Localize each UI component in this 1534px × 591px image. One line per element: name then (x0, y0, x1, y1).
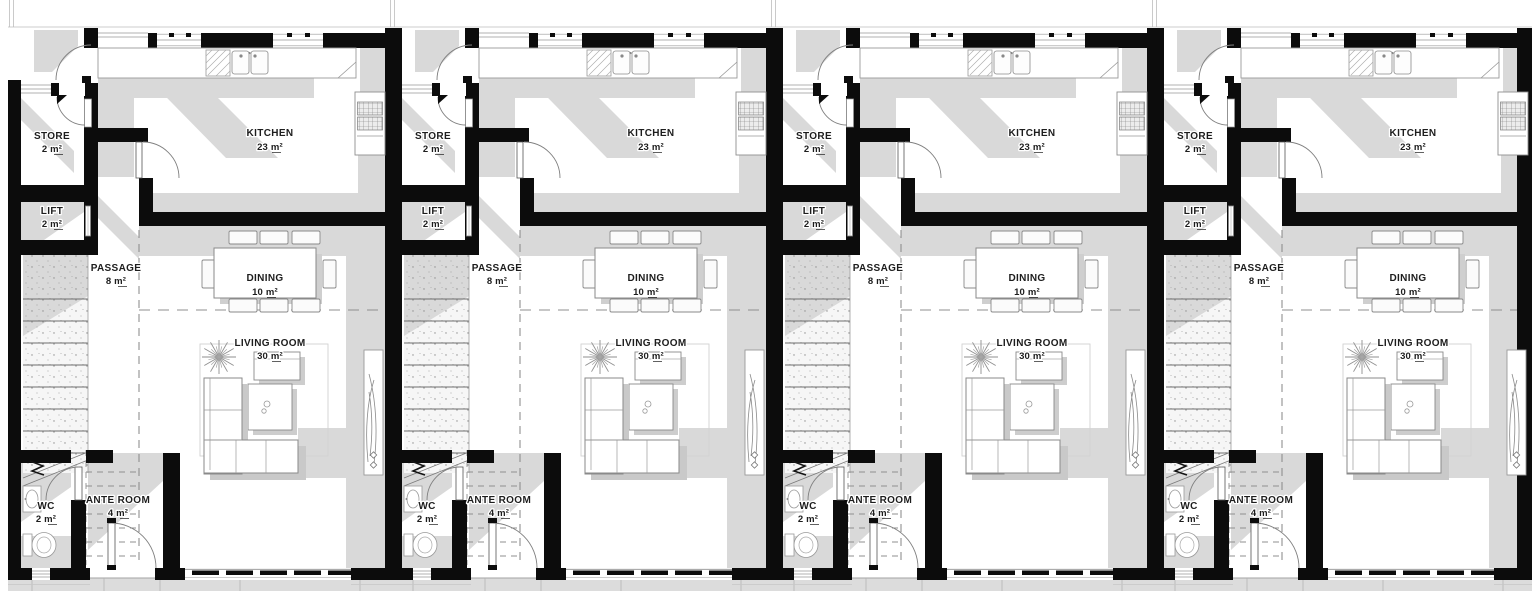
floor-plan-unit-3: STORE 2 m² LIFT 2 m² KITCHEN 23 m² PASSA… (770, 0, 1151, 591)
store-window (402, 83, 432, 95)
wc-window (413, 568, 431, 580)
main-entry-door-arc (111, 523, 156, 568)
passage-area: 8 m² (106, 276, 126, 287)
floor-plan: STORE 2 m² LIFT 2 m² KITCHEN 23 m² PASSA… (0, 0, 1534, 591)
wc-area: 2 m² (36, 514, 56, 525)
kitchen-sink (968, 50, 1030, 76)
entry-door-niche (98, 31, 148, 42)
living-room-area: 30 m² (638, 351, 664, 362)
dining-label: DINING (627, 273, 664, 284)
kitchen-sink (587, 50, 649, 76)
store-area: 2 m² (804, 144, 824, 155)
ante-room-area: 4 m² (1251, 508, 1271, 519)
ante-room-label: ANTE ROOM (848, 495, 912, 506)
sideboard (745, 350, 764, 475)
wc-label: WC (418, 501, 435, 512)
ante-room-label: ANTE ROOM (86, 495, 150, 506)
lift-label: LIFT (422, 206, 445, 217)
ante-room-label: ANTE ROOM (467, 495, 531, 506)
wc-area: 2 m² (417, 514, 437, 525)
kitchen-door-leaf (517, 142, 523, 178)
wc-area: 2 m² (1179, 514, 1199, 525)
dining-area: 10 m² (633, 287, 659, 298)
passage-label: PASSAGE (1234, 263, 1285, 274)
kitchen-door-leaf (136, 142, 142, 178)
kitchen-label: KITCHEN (1009, 128, 1056, 139)
store-door-hinge-icon (1200, 95, 1210, 104)
toilet (1166, 533, 1199, 558)
living-room-window (566, 568, 732, 580)
passage-area: 8 m² (487, 276, 507, 287)
store-label: STORE (796, 131, 832, 142)
wc-window (32, 568, 50, 580)
plant (583, 340, 617, 374)
store-door-hinge-icon (819, 95, 829, 104)
kitchen-window-left (154, 33, 204, 48)
kitchen-area: 23 m² (1400, 142, 1426, 153)
living-room-label: LIVING ROOM (615, 338, 686, 349)
kitchen-label: KITCHEN (628, 128, 675, 139)
floor-plan-unit-1: STORE 2 m² LIFT 2 m² KITCHEN 23 m² PASSA… (8, 0, 389, 591)
kitchen-area: 23 m² (1019, 142, 1045, 153)
kitchen-window-left (1297, 33, 1347, 48)
main-entry-door-leaf (489, 523, 496, 568)
lift-area: 2 m² (42, 219, 62, 230)
kitchen-window-right (651, 33, 707, 48)
wc-window (1175, 568, 1193, 580)
site-boundary-lines (8, 0, 389, 27)
passage-area: 8 m² (868, 276, 888, 287)
kitchen-door-leaf (898, 142, 904, 178)
sideboard (1126, 350, 1145, 475)
site-boundary-lines (389, 0, 770, 27)
unit-drawing: STORE 2 m² LIFT 2 m² KITCHEN 23 m² PASSA… (389, 0, 770, 591)
lift-area: 2 m² (423, 219, 443, 230)
coffee-table (629, 384, 678, 435)
dining-label: DINING (246, 273, 283, 284)
main-entry-door-arc (1254, 523, 1299, 568)
living-room-window (947, 568, 1113, 580)
main-entry-door-leaf (870, 523, 877, 568)
site-boundary-lines (1151, 0, 1532, 27)
wc-door-leaf (75, 467, 82, 500)
kitchen-door-leaf (1279, 142, 1285, 178)
living-room-area: 30 m² (1019, 351, 1045, 362)
entry-door-niche (1241, 31, 1291, 42)
lift-label: LIFT (41, 206, 64, 217)
kitchen-window-right (1413, 33, 1469, 48)
kitchen-door-arc (143, 142, 179, 178)
lift-label: LIFT (1184, 206, 1207, 217)
lift-doors (1229, 206, 1234, 236)
lift-label: LIFT (803, 206, 826, 217)
lift-area: 2 m² (1185, 219, 1205, 230)
unit-drawing: STORE 2 m² LIFT 2 m² KITCHEN 23 m² PASSA… (8, 0, 389, 591)
store-door-arc (57, 97, 85, 125)
living-room-area: 30 m² (257, 351, 283, 362)
kitchen-window-right (1032, 33, 1088, 48)
store-label: STORE (415, 131, 451, 142)
ante-room-label: ANTE ROOM (1229, 495, 1293, 506)
passage-label: PASSAGE (91, 263, 142, 274)
toilet (23, 533, 56, 558)
lift-doors (467, 206, 472, 236)
wc-door-leaf (1218, 467, 1225, 500)
kitchen-sink (206, 50, 268, 76)
store-door-arc (1200, 97, 1228, 125)
plant (1345, 340, 1379, 374)
main-entry-door-leaf (1251, 523, 1258, 568)
dining-label: DINING (1008, 273, 1045, 284)
dining-area: 10 m² (1014, 287, 1040, 298)
stove (1117, 92, 1147, 155)
ante-room-area: 4 m² (489, 508, 509, 519)
kitchen-label: KITCHEN (247, 128, 294, 139)
store-area: 2 m² (1185, 144, 1205, 155)
store-door-arc (819, 97, 847, 125)
store-door-hinge-icon (57, 95, 67, 104)
store-door-arc (438, 97, 466, 125)
entry-door-niche (479, 31, 529, 42)
dining-label: DINING (1389, 273, 1426, 284)
kitchen-window-left (916, 33, 966, 48)
entry-door-niche (860, 31, 910, 42)
toilet (785, 533, 818, 558)
kitchen-door-arc (905, 142, 941, 178)
coffee-table (248, 384, 297, 435)
store-door-channel (85, 99, 92, 127)
passage-label: PASSAGE (472, 263, 523, 274)
store-window (21, 83, 51, 95)
kitchen-area: 23 m² (257, 142, 283, 153)
coffee-table (1391, 384, 1440, 435)
site-boundary-lines (770, 0, 1151, 27)
kitchen-sink (1349, 50, 1411, 76)
wc-door-leaf (456, 467, 463, 500)
main-entry-door-arc (873, 523, 918, 568)
store-area: 2 m² (423, 144, 443, 155)
wc-area: 2 m² (798, 514, 818, 525)
unit-drawing: STORE 2 m² LIFT 2 m² KITCHEN 23 m² PASSA… (770, 0, 1151, 591)
toilet (404, 533, 437, 558)
main-entry-door-leaf (108, 523, 115, 568)
kitchen-door-arc (1286, 142, 1322, 178)
plant (202, 340, 236, 374)
sideboard (1507, 350, 1526, 475)
store-window (1164, 83, 1194, 95)
plant (964, 340, 998, 374)
dining-area: 10 m² (1395, 287, 1421, 298)
main-entry-door-arc (492, 523, 537, 568)
lift-doors (86, 206, 91, 236)
unit-drawing: STORE 2 m² LIFT 2 m² KITCHEN 23 m² PASSA… (1151, 0, 1532, 591)
store-window (783, 83, 813, 95)
floor-plan-unit-2: STORE 2 m² LIFT 2 m² KITCHEN 23 m² PASSA… (389, 0, 770, 591)
store-door-channel (1228, 99, 1235, 127)
kitchen-label: KITCHEN (1390, 128, 1437, 139)
living-room-label: LIVING ROOM (1377, 338, 1448, 349)
store-door-channel (847, 99, 854, 127)
wc-label: WC (799, 501, 816, 512)
passage-label: PASSAGE (853, 263, 904, 274)
store-door-hinge-icon (438, 95, 448, 104)
kitchen-window-left (535, 33, 585, 48)
kitchen-window-right (270, 33, 326, 48)
coffee-table (1010, 384, 1059, 435)
dining-area: 10 m² (252, 287, 278, 298)
living-room-label: LIVING ROOM (996, 338, 1067, 349)
lift-area: 2 m² (804, 219, 824, 230)
sideboard (364, 350, 383, 475)
living-room-window (1328, 568, 1494, 580)
stove (355, 92, 385, 155)
ante-room-area: 4 m² (108, 508, 128, 519)
kitchen-area: 23 m² (638, 142, 664, 153)
wc-door-leaf (837, 467, 844, 500)
wc-label: WC (37, 501, 54, 512)
floor-plan-unit-4: STORE 2 m² LIFT 2 m² KITCHEN 23 m² PASSA… (1151, 0, 1532, 591)
store-label: STORE (1177, 131, 1213, 142)
kitchen-door-arc (524, 142, 560, 178)
ante-room-area: 4 m² (870, 508, 890, 519)
lift-doors (848, 206, 853, 236)
living-room-area: 30 m² (1400, 351, 1426, 362)
store-label: STORE (34, 131, 70, 142)
stove (736, 92, 766, 155)
store-area: 2 m² (42, 144, 62, 155)
wc-label: WC (1180, 501, 1197, 512)
store-door-channel (466, 99, 473, 127)
living-room-window (185, 568, 351, 580)
wc-window (794, 568, 812, 580)
stove (1498, 92, 1528, 155)
living-room-label: LIVING ROOM (234, 338, 305, 349)
passage-area: 8 m² (1249, 276, 1269, 287)
